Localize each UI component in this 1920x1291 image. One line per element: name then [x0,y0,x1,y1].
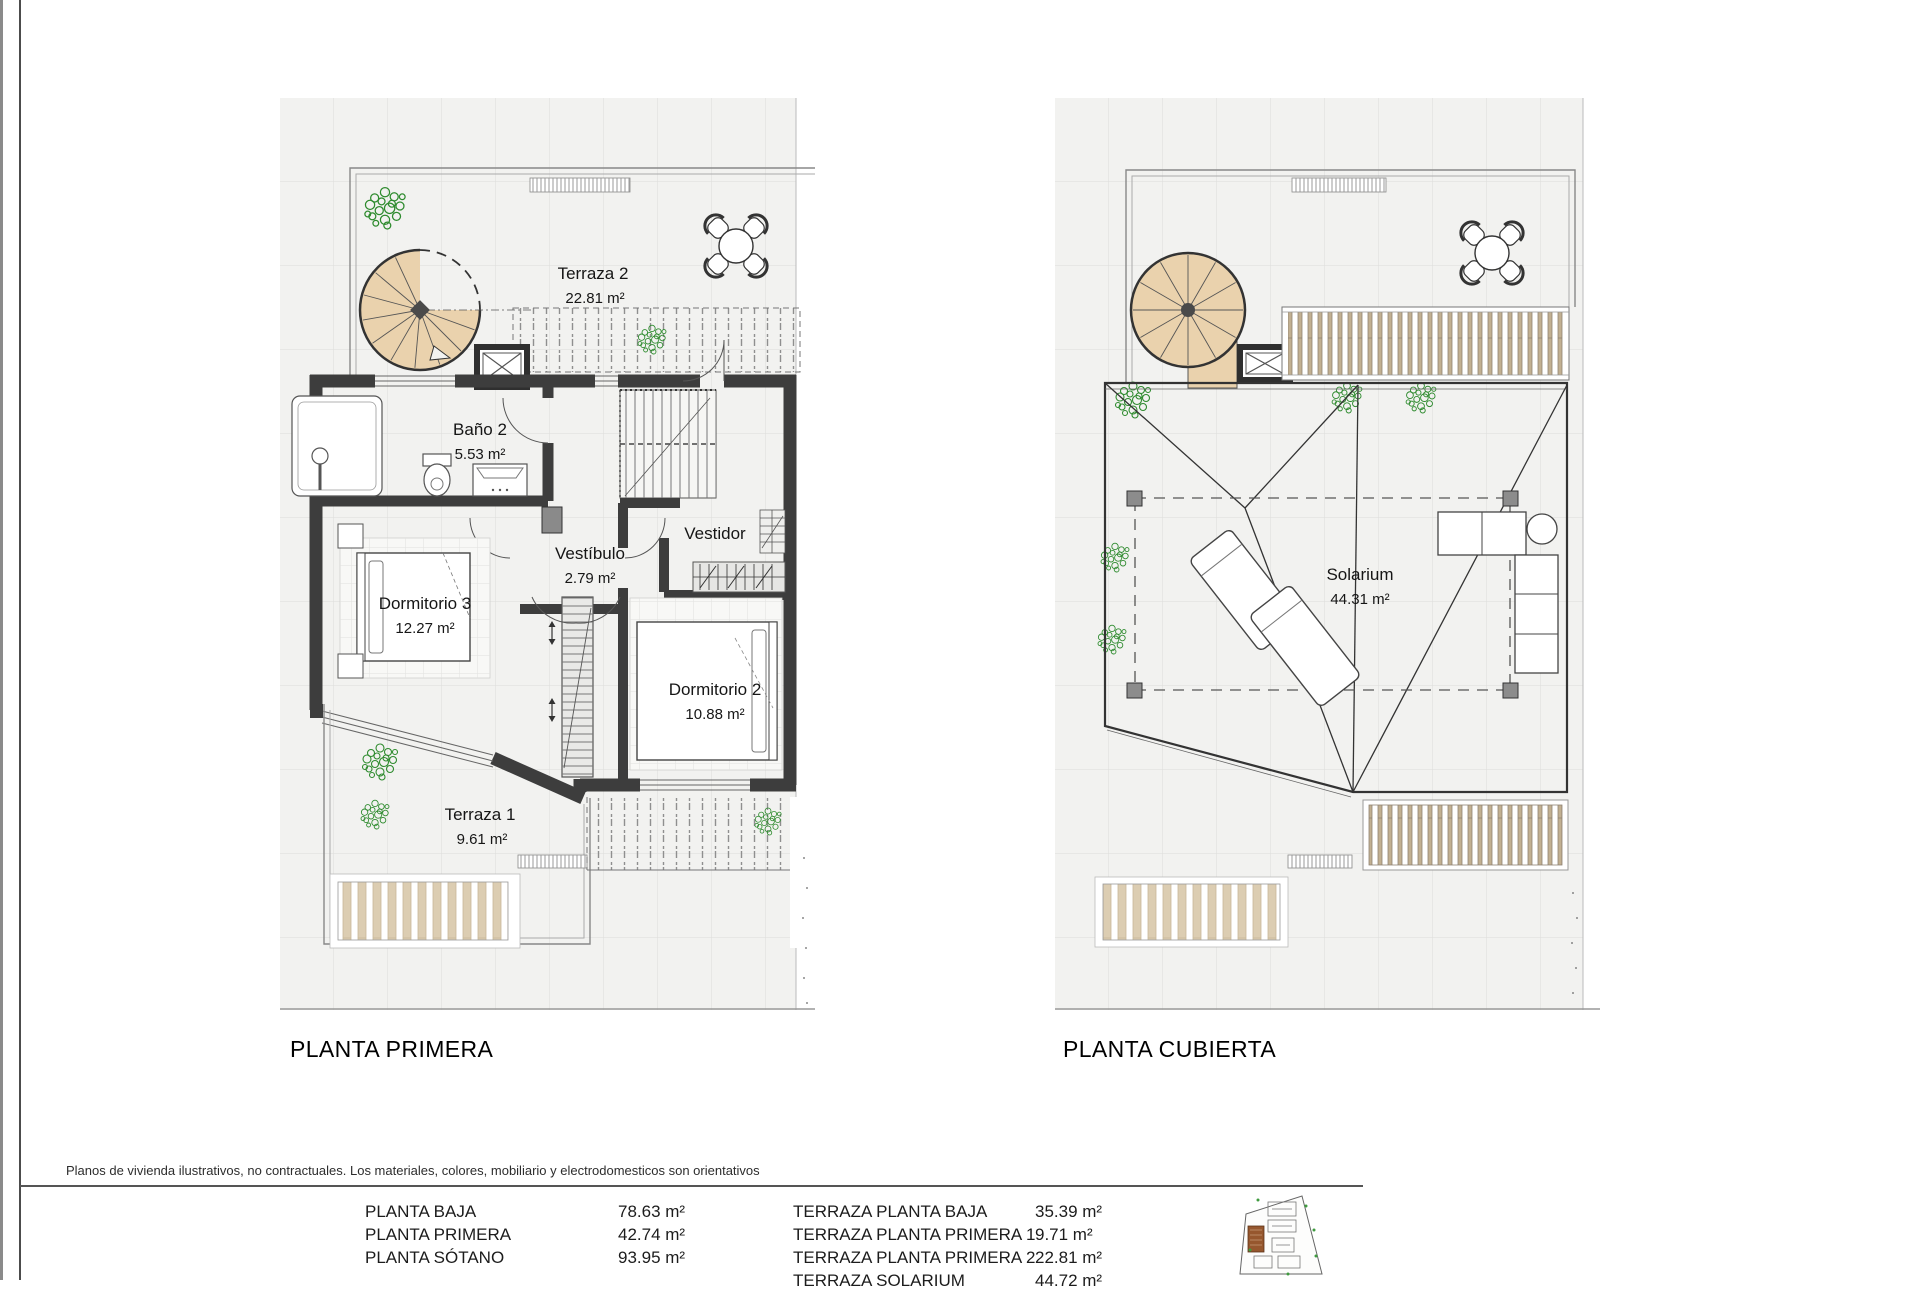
vent-grille-icon [518,855,587,868]
room-area-dormitorio2: 10.88 m² [635,706,795,723]
plan-title-planta-primera: PLANTA PRIMERA [290,1036,493,1063]
staircase-upper [620,390,716,498]
table-label: PLANTA PRIMERA [365,1225,511,1245]
table-label: TERRAZA PLANTA PRIMERA 2 [793,1248,1035,1268]
side-table-icon [1527,514,1557,544]
disclaimer-text: Planos de vivienda ilustrativos, no cont… [66,1163,760,1178]
staircase-lower [562,597,593,777]
room-label-dormitorio3: Dormitorio 3 [345,594,505,614]
divider-line [20,1185,1363,1187]
shower-icon [292,396,382,496]
deck-hatch-top [513,308,800,372]
room-label-solarium: Solarium [1280,565,1440,585]
brochure-page: { "plans": [ { "title": "PLANTA PRIMERA"… [0,0,1920,1280]
vent-grille-icon [1288,855,1352,868]
table-value: 22.81 m² [1035,1248,1102,1268]
floor-plan-planta-primera: Terraza 2 22.81 m² Baño 2 5.53 m² Vestíb… [280,98,815,1010]
room-area-solarium: 44.31 m² [1280,591,1440,608]
table-value: 35.39 m² [1035,1202,1102,1222]
table-value: 44.72 m² [1035,1271,1102,1291]
table-label: TERRAZA PLANTA BAJA [793,1202,987,1222]
scan-edge-line [0,0,3,1280]
room-area-vestibulo: 2.79 m² [510,570,670,587]
pergola-slats [330,874,520,948]
table-label: TERRAZA SOLARIUM [793,1271,965,1291]
room-label-dormitorio2: Dormitorio 2 [635,680,795,700]
table-label: PLANTA BAJA [365,1202,476,1222]
pergola-slats [1282,307,1569,380]
deck-slats [1363,800,1568,870]
room-area-dormitorio3: 12.27 m² [345,620,505,637]
table-value: 78.63 m² [618,1202,685,1222]
room-label-terraza1: Terraza 1 [400,805,560,825]
room-area-bano2: 5.53 m² [400,446,560,463]
room-label-vestibulo: Vestíbulo [510,544,670,564]
floor-plan-drawing-planta-cubierta [1055,98,1600,1010]
room-area-terraza2: 22.81 m² [515,290,675,307]
margin-strip [790,797,815,948]
wall-joint [310,704,323,718]
page-border-line [19,0,21,1280]
room-label-vestidor: Vestidor [635,524,795,544]
sink-vanity-icon [473,464,527,496]
duct-box [542,507,562,533]
vent-grille-icon [530,178,630,192]
floor-plan-planta-cubierta: Solarium 44.31 m² [1055,98,1600,1010]
pergola-slats [1095,877,1288,947]
vent-grille-icon [1292,178,1386,192]
table-value: 42.74 m² [618,1225,685,1245]
plan-title-planta-cubierta: PLANTA CUBIERTA [1063,1036,1276,1063]
table-label: TERRAZA PLANTA PRIMERA 1 [793,1225,1035,1245]
room-label-bano2: Baño 2 [400,420,560,440]
room-area-terraza1: 9.61 m² [402,831,562,848]
table-value: 9.71 m² [1035,1225,1093,1245]
deck-hatch-bottom [587,797,790,870]
site-plan-thumbnail [1228,1190,1328,1280]
table-value: 93.95 m² [618,1248,685,1268]
room-label-terraza2: Terraza 2 [513,264,673,284]
table-label: PLANTA SÓTANO [365,1248,504,1268]
